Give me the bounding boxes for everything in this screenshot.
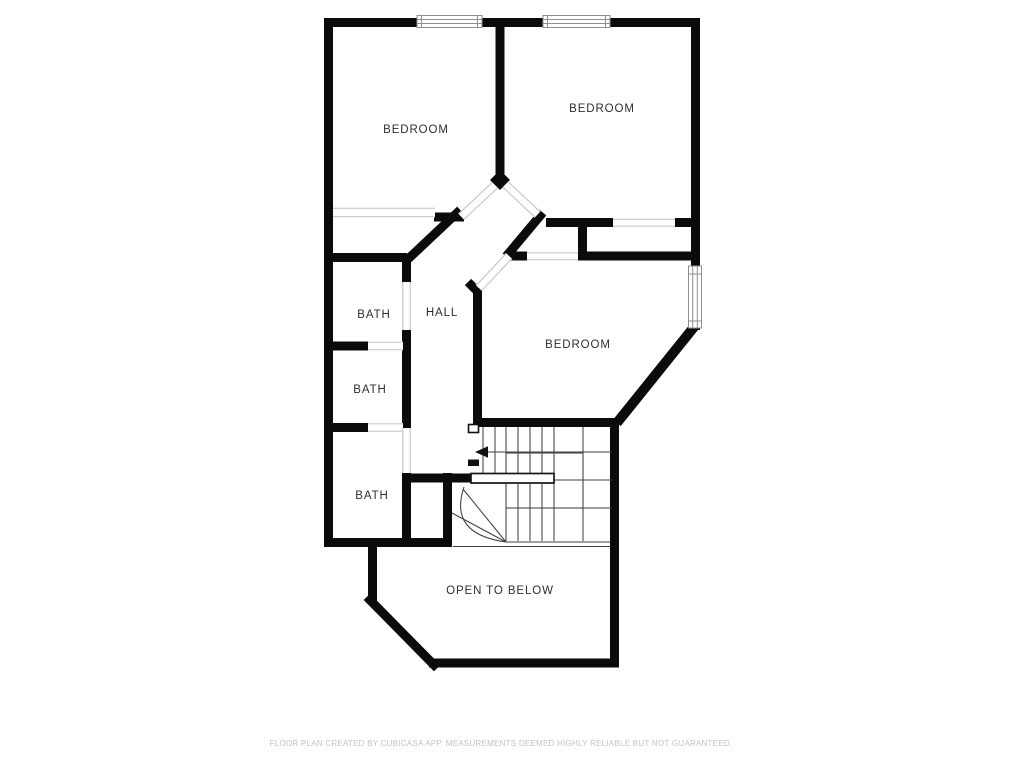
wall-bedroom-middle-door-stub [468,282,476,290]
wall-hall-nw-diagonal [407,213,457,260]
stair-handrail [471,474,554,484]
opening-bath2-bath3 [368,423,403,432]
opening-bath3-door [402,428,411,473]
opening-bedroom-middle-entry [527,252,578,261]
opening-closet [613,219,675,228]
stair-entry-jamb-bottom [468,460,479,467]
opening-bedroom-right-door [502,181,540,218]
opening-bath1-bath2 [368,342,403,351]
wall-open-below-diagonal [370,600,434,665]
opening-bedroom-left-bottom [333,208,435,218]
window-bedroom-middle [689,266,702,328]
wall-hall-se-diagonal [509,216,540,253]
room-label-open-to-below: OPEN TO BELOW [446,585,554,597]
opening-bedroom-left-door [458,182,498,220]
window-bedroom-right [543,16,610,28]
window-bedroom-left [417,16,482,28]
floor-plan-page: BEDROOM BEDROOM BATH HALL BEDROOM BATH B… [0,0,1024,768]
room-label-bath-1: BATH [357,309,390,321]
opening-bath1-door [402,282,411,330]
opening-layer [333,181,675,473]
opening-bedroom-middle-door [476,253,513,291]
stair-entry-jamb-top [469,425,479,433]
staircase [452,425,612,547]
stair-direction-arrow [475,446,488,458]
footer-disclaimer: FLOOR PLAN CREATED BY CUBICASA APP. MEAS… [270,739,733,748]
room-label-bedroom-left: BEDROOM [383,124,449,136]
window-layer [417,16,702,329]
floor-plan-drawing: BEDROOM BEDROOM BATH HALL BEDROOM BATH B… [0,0,1024,768]
room-label-hall: HALL [426,307,458,319]
wall-diagonal-northeast [620,327,694,419]
room-label-bath-2: BATH [353,384,386,396]
room-label-bedroom-right: BEDROOM [569,103,635,115]
room-label-bedroom-middle: BEDROOM [545,339,611,351]
room-label-bath-3: BATH [355,490,388,502]
